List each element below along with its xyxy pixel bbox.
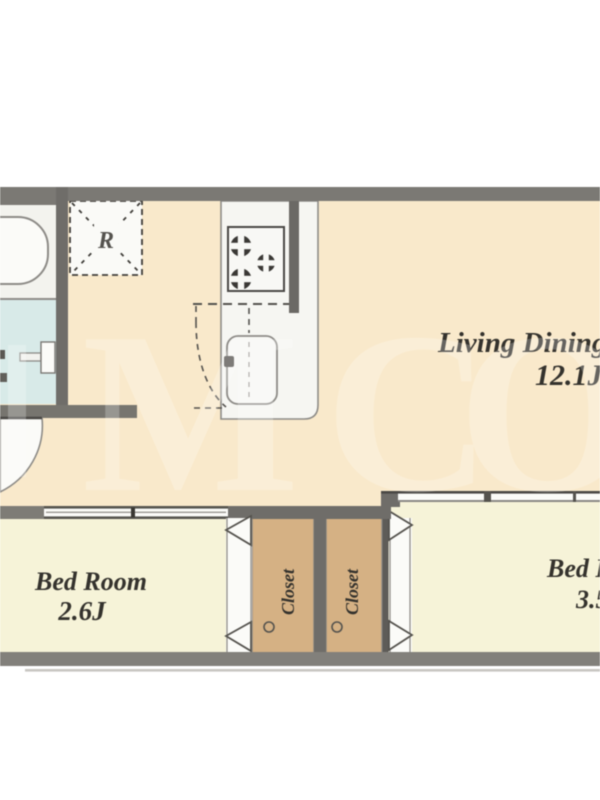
svg-text:Closet: Closet	[278, 568, 298, 615]
svg-text:3.5J: 3.5J	[575, 585, 600, 614]
svg-text:O: O	[458, 285, 600, 540]
svg-text:2.6J: 2.6J	[57, 596, 107, 626]
svg-text:Bed Room: Bed Room	[546, 554, 600, 583]
svg-text:Bed Room: Bed Room	[34, 567, 147, 596]
svg-text:Closet: Closet	[342, 568, 362, 615]
svg-text:M: M	[82, 285, 299, 540]
svg-text:R: R	[97, 228, 114, 254]
